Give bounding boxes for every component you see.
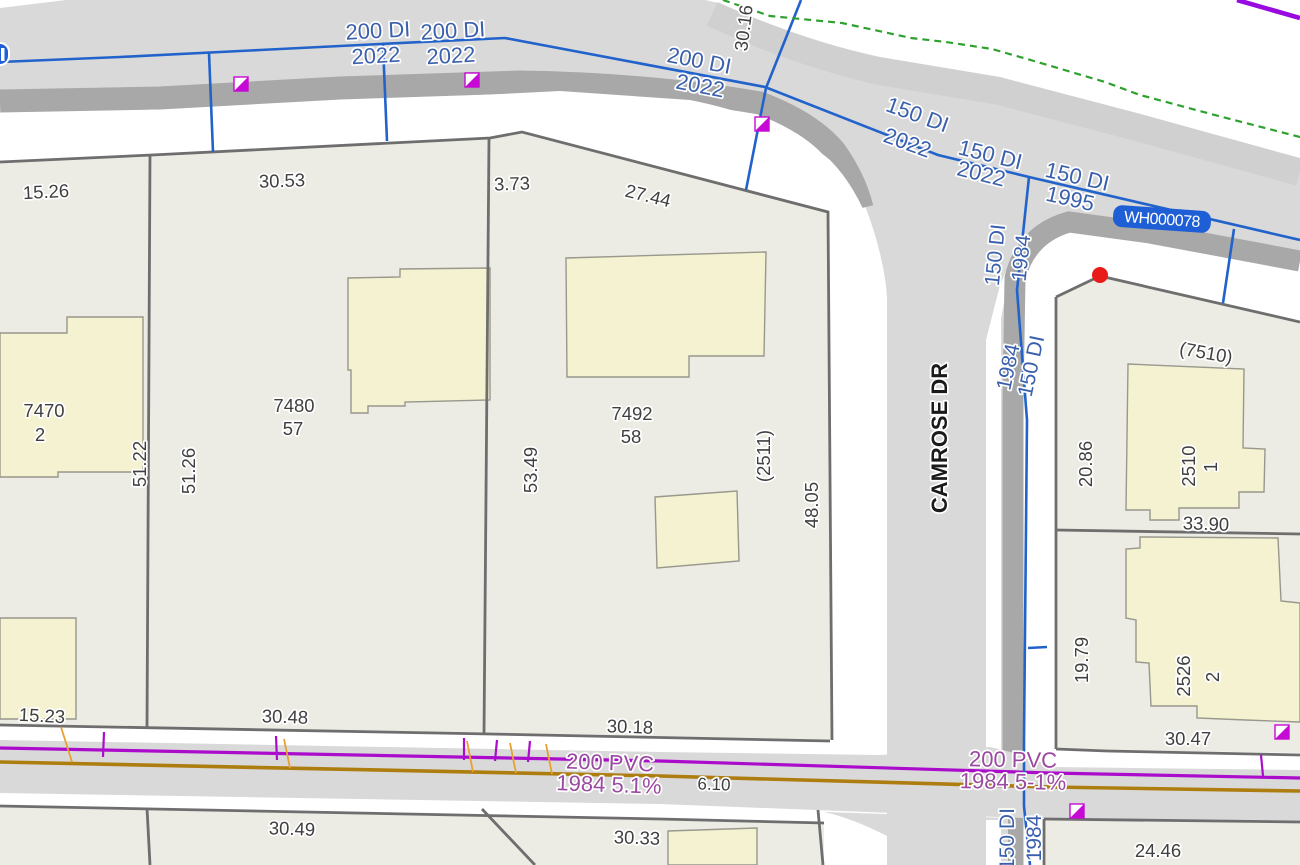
svg-text:20.86: 20.86 — [1075, 441, 1096, 487]
svg-text:1984: 1984 — [1008, 233, 1036, 282]
svg-text:1984 5-1%: 1984 5-1% — [960, 768, 1067, 795]
svg-text:150 DI: 150 DI — [996, 808, 1019, 865]
svg-text:6.10: 6.10 — [697, 774, 731, 794]
svg-text:15.23: 15.23 — [18, 704, 65, 727]
svg-text:1984 5.1%: 1984 5.1% — [556, 770, 662, 799]
svg-text:33.90: 33.90 — [1183, 512, 1230, 535]
svg-text:2526: 2526 — [1173, 655, 1194, 696]
svg-text:30.48: 30.48 — [262, 705, 309, 728]
svg-text:30.53: 30.53 — [258, 169, 305, 192]
svg-text:19.79: 19.79 — [1071, 637, 1092, 683]
svg-text:3.73: 3.73 — [494, 172, 531, 194]
svg-text:57: 57 — [283, 418, 304, 439]
svg-text:2510: 2510 — [1178, 445, 1199, 486]
svg-text:2022: 2022 — [351, 42, 401, 70]
svg-text:7480: 7480 — [273, 395, 314, 416]
svg-text:1: 1 — [1200, 462, 1221, 472]
svg-text:(2511): (2511) — [753, 430, 774, 482]
svg-text:51.26: 51.26 — [178, 448, 199, 494]
svg-text:200 DI: 200 DI — [420, 16, 486, 44]
svg-text:200 DI: 200 DI — [345, 16, 411, 44]
svg-text:CAMROSE DR: CAMROSE DR — [927, 363, 952, 513]
svg-text:15.26: 15.26 — [22, 180, 69, 203]
svg-text:7470: 7470 — [23, 400, 64, 421]
svg-text:1984: 1984 — [1023, 814, 1046, 861]
svg-text:7492: 7492 — [611, 403, 652, 424]
svg-text:51.22: 51.22 — [129, 441, 150, 487]
svg-text:24.46: 24.46 — [1135, 840, 1181, 861]
svg-text:30.49: 30.49 — [269, 817, 316, 840]
svg-text:58: 58 — [621, 426, 642, 447]
svg-text:30.18: 30.18 — [607, 715, 654, 738]
svg-text:2: 2 — [1202, 672, 1223, 682]
svg-text:2022: 2022 — [426, 42, 476, 70]
svg-text:2: 2 — [35, 424, 45, 445]
svg-text:30.33: 30.33 — [614, 826, 661, 849]
svg-text:53.49: 53.49 — [520, 447, 541, 493]
svg-text:30.47: 30.47 — [1165, 728, 1211, 749]
svg-text:48.05: 48.05 — [801, 482, 822, 528]
